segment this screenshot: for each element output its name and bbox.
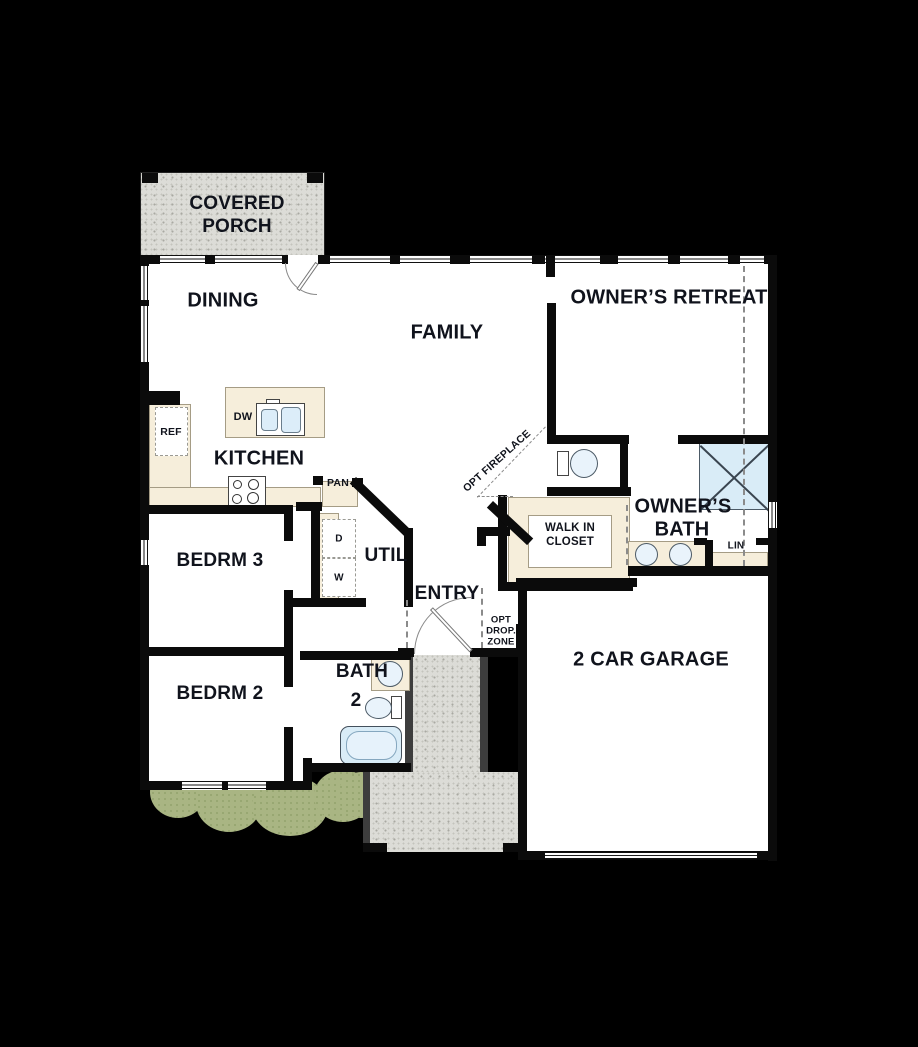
- label-dining: DINING: [187, 290, 258, 313]
- porch-corner: [363, 843, 387, 852]
- window: [330, 255, 390, 264]
- window: [618, 255, 668, 264]
- burner: [233, 480, 242, 489]
- option-line: [743, 266, 745, 566]
- front-walk-slab: [412, 655, 480, 772]
- burner: [232, 494, 242, 504]
- bathtub-inner: [346, 731, 397, 760]
- label-kitchen: KITCHEN: [214, 448, 304, 471]
- porch-wall: [480, 655, 488, 772]
- wall-bath2-south: [303, 763, 411, 772]
- wall-bedrm2-east: [284, 727, 293, 787]
- wall-pantry-stub: [313, 476, 323, 485]
- window: [680, 255, 728, 264]
- sink-faucet: [266, 399, 280, 404]
- wall-retreat-west: [547, 303, 556, 443]
- porch-post: [142, 173, 158, 183]
- label-drop-zone-1: OPT: [491, 615, 511, 626]
- toilet-tank: [557, 451, 569, 476]
- label-bedrm2: BEDRM 2: [177, 683, 264, 705]
- wall-hall: [477, 527, 486, 546]
- window: [182, 781, 222, 790]
- label-bath2-1: BATH: [336, 661, 388, 683]
- label-washer: W: [334, 573, 344, 584]
- wall-stub: [756, 538, 769, 545]
- label-covered-porch-1: COVERED: [189, 193, 284, 215]
- label-drop-zone-2: DROP.: [486, 626, 516, 637]
- window: [740, 255, 764, 264]
- wall-wc-east: [620, 435, 628, 491]
- porch-post: [307, 173, 323, 183]
- window: [160, 255, 205, 264]
- floor-garage: [518, 575, 777, 860]
- label-pan: PAN: [327, 477, 349, 489]
- window: [215, 255, 282, 264]
- burner: [247, 492, 259, 504]
- label-dryer: D: [335, 534, 342, 545]
- wall-bedrm3-east: [284, 505, 293, 541]
- wall-garage-west: [518, 578, 527, 852]
- burner: [248, 479, 259, 490]
- label-walk-in-closet-2: CLOSET: [546, 536, 594, 548]
- window: [768, 502, 777, 528]
- label-owners-bath-2: BATH: [655, 519, 710, 542]
- garage-door: [545, 852, 757, 859]
- label-garage: 2 CAR GARAGE: [573, 649, 729, 672]
- wall-util-east: [404, 528, 413, 607]
- wall-exterior-east: [768, 255, 777, 861]
- label-family: FAMILY: [411, 322, 484, 345]
- label-walk-in-closet-1: WALK IN: [545, 522, 595, 534]
- closet-opening-line: [626, 505, 628, 565]
- wall-bedrm3-north: [140, 505, 293, 514]
- entry-opening-line: [406, 600, 408, 648]
- wall-bedrm2-east: [284, 647, 293, 687]
- wall-bath-south: [628, 566, 777, 576]
- wall-garage-north: [516, 578, 637, 587]
- sink-basin: [261, 409, 278, 431]
- dropzone-opening-line: [481, 588, 483, 648]
- wall-bath-north: [678, 435, 777, 444]
- toilet-bowl: [570, 449, 598, 478]
- label-drop-zone-3: ZONE: [487, 637, 514, 648]
- window: [470, 255, 532, 264]
- vanity-sink: [669, 543, 692, 566]
- label-covered-porch-2: PORCH: [202, 216, 272, 238]
- label-util: UTIL: [364, 545, 407, 567]
- label-lin: LIN: [728, 541, 745, 552]
- wall-stub: [546, 255, 555, 277]
- wall-bedrm-divider: [140, 647, 293, 656]
- label-owners-retreat: OWNER’S RETREAT: [570, 287, 767, 310]
- front-porch-slab: [363, 772, 527, 852]
- label-owners-bath-1: OWNER’S: [635, 496, 732, 519]
- label-entry: ENTRY: [415, 583, 480, 605]
- window: [140, 540, 149, 565]
- wall-bath2-north: [300, 651, 411, 660]
- window: [140, 266, 149, 300]
- floor-plan: COVERED PORCH DINING FAMILY OWNER’S RETR…: [0, 0, 918, 1047]
- label-bedrm3: BEDRM 3: [177, 550, 264, 572]
- window: [400, 255, 450, 264]
- wall-wc-north: [547, 435, 629, 444]
- toilet-tank: [391, 696, 402, 719]
- label-dw: DW: [234, 411, 253, 423]
- label-bath2-2: 2: [351, 690, 362, 712]
- sink-basin: [281, 407, 301, 433]
- vanity-sink: [635, 543, 658, 566]
- wall-pier-kitchen: [149, 391, 180, 405]
- wall-entry-south: [398, 648, 414, 657]
- window: [228, 781, 266, 790]
- wall-closet-north: [547, 487, 631, 496]
- wall-util-south: [290, 598, 366, 607]
- wall-util-west: [311, 502, 320, 607]
- label-ref: REF: [160, 426, 182, 438]
- porch-wall: [363, 772, 370, 852]
- fireplace-option-line: [477, 496, 513, 497]
- window: [140, 306, 149, 362]
- toilet-bowl: [365, 697, 392, 719]
